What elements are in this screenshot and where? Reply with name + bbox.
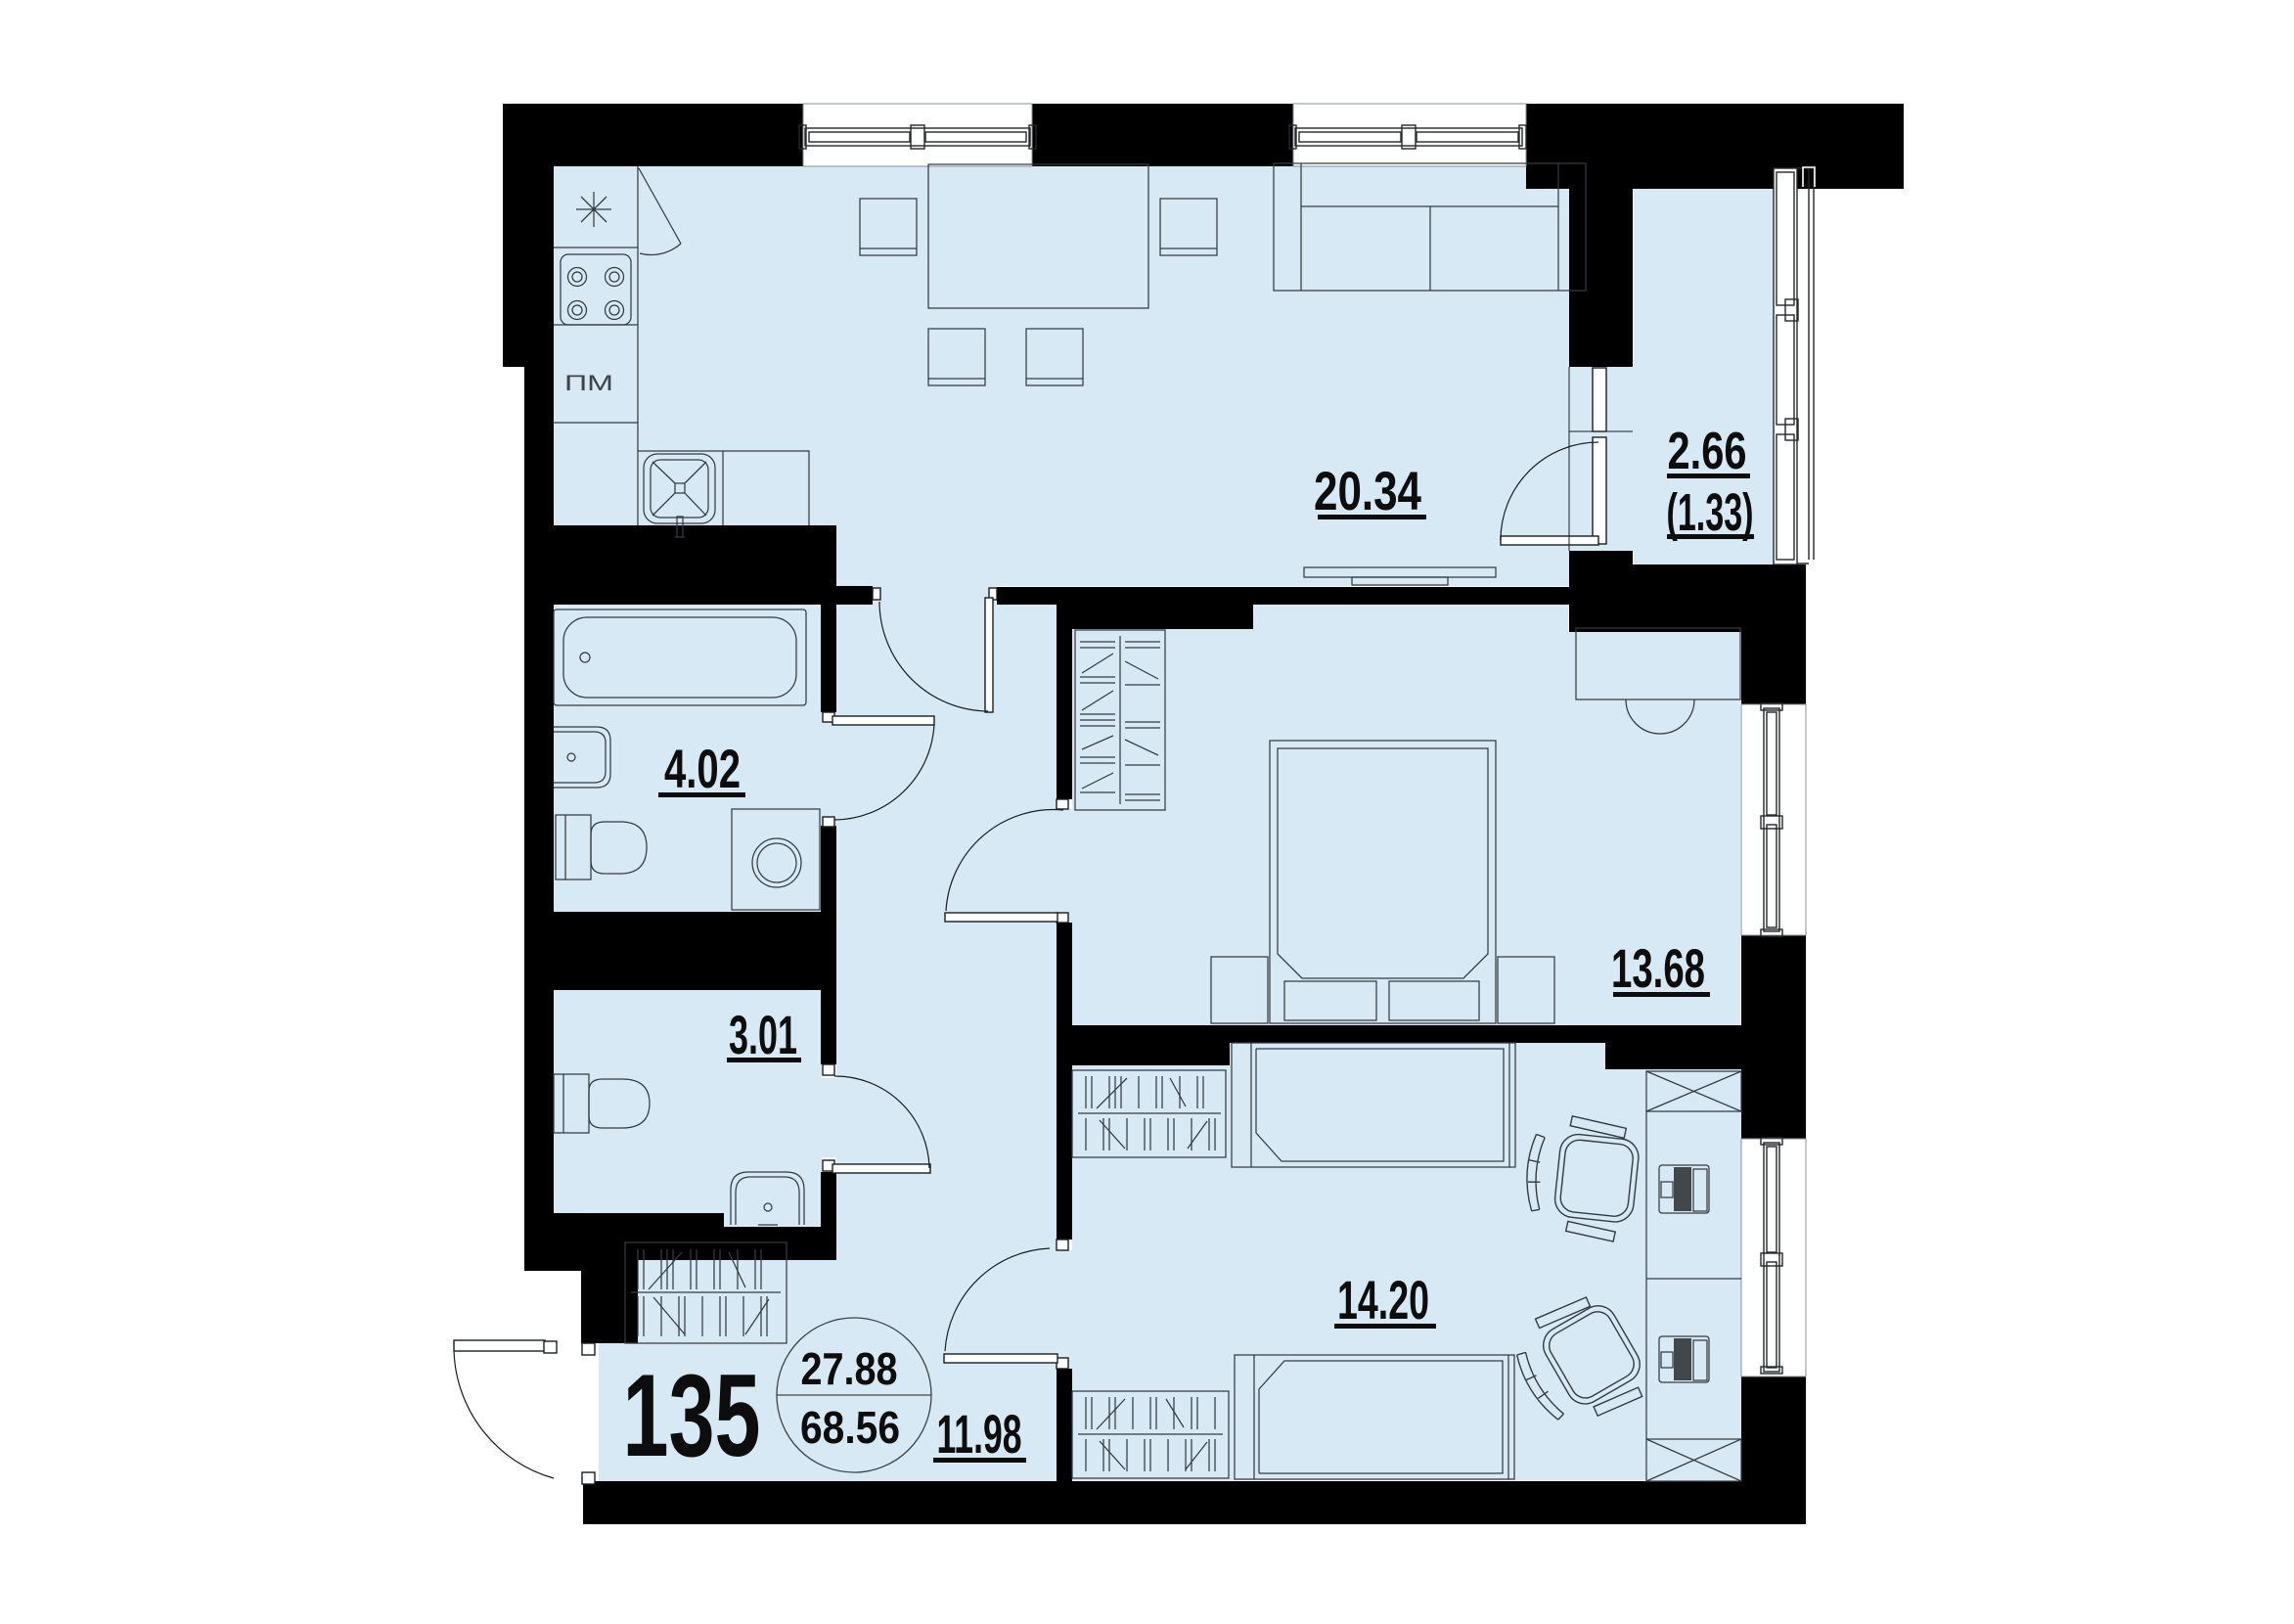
svg-text:(1.33): (1.33) bbox=[1667, 483, 1754, 542]
svg-text:135: 135 bbox=[623, 1350, 761, 1481]
svg-text:4.02: 4.02 bbox=[664, 738, 741, 799]
svg-text:14.20: 14.20 bbox=[1337, 1269, 1429, 1331]
svg-text:ПМ: ПМ bbox=[564, 371, 613, 395]
svg-text:68.56: 68.56 bbox=[800, 1402, 900, 1453]
svg-text:11.98: 11.98 bbox=[937, 1403, 1022, 1465]
svg-text:13.68: 13.68 bbox=[1611, 937, 1705, 999]
svg-text:3.01: 3.01 bbox=[729, 1004, 797, 1065]
svg-text:20.34: 20.34 bbox=[1314, 460, 1421, 521]
svg-text:2.66: 2.66 bbox=[1668, 422, 1747, 480]
svg-text:27.88: 27.88 bbox=[801, 1343, 898, 1394]
